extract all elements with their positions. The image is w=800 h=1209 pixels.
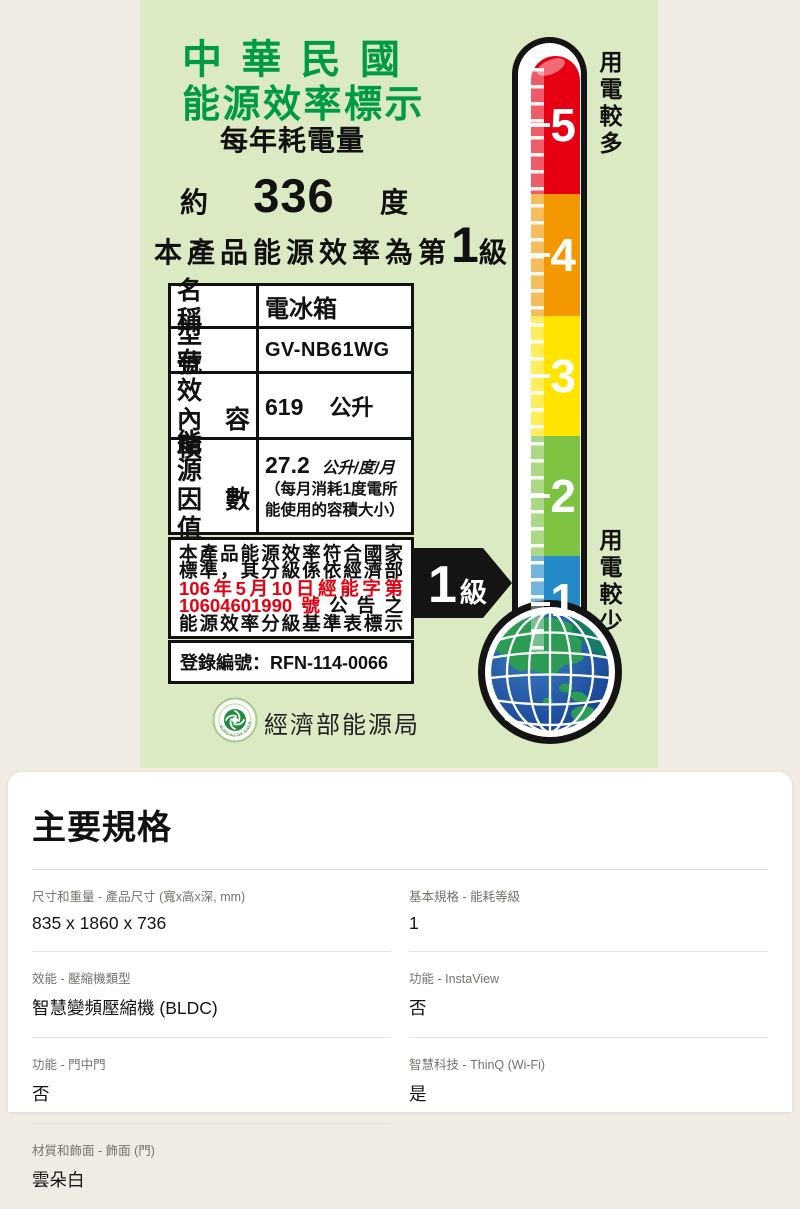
- spec-value: 否: [409, 995, 768, 1020]
- badge-grade-number: 1: [428, 554, 457, 616]
- statement-line-mixed: 10604601990號公告之: [179, 597, 403, 614]
- specs-left-column: 尺寸和重量 - 產品尺寸 (寬x高x深, mm) 835 x 1860 x 73…: [32, 870, 391, 1209]
- energy-label-area: 中 華 民 國 能源效率標示 每年耗電量 約 336 度 本產品能源效率為第 1…: [0, 0, 800, 768]
- segment-number: 4: [550, 232, 576, 278]
- thermometer-inner: 5 4 3 2 1: [518, 43, 581, 645]
- specs-title: 主要規格: [32, 800, 768, 849]
- energy-factor-unit: 公升/度/月: [322, 454, 395, 478]
- spec-label: 功能 - InstaView: [409, 968, 768, 987]
- standard-statement-box: 本產品能源效率符合國家 標準，其分級係依經濟部 106年5月10日經能字第 10…: [168, 537, 414, 639]
- spec-value: 智慧變頻壓縮機 (BLDC): [32, 995, 391, 1020]
- spec-value: 雲朵白: [32, 1167, 391, 1192]
- spec-row: 功能 - 門中門 否: [32, 1038, 391, 1124]
- spec-row: 功能 - InstaView 否: [409, 952, 768, 1038]
- agency-name: 經濟部能源局: [264, 705, 420, 740]
- spec-value: 是: [409, 1081, 768, 1106]
- row-label-text: 有 效: [177, 348, 250, 406]
- energy-factor-note: （每月消耗1度電所: [265, 481, 405, 500]
- capacity-unit: 公升: [329, 390, 373, 422]
- row-label: 能 源 因數值: [171, 440, 259, 532]
- specs-section: 主要規格 尺寸和重量 - 產品尺寸 (寬x高x深, mm) 835 x 1860…: [0, 768, 800, 1112]
- label-subtitle: 每年耗電量: [220, 119, 365, 159]
- spec-row: 基本規格 - 能耗等級 1: [409, 870, 768, 952]
- bureau-of-energy-seal-icon: BUREAU OF ENERGY: [212, 697, 258, 743]
- segment-number: 1: [550, 577, 576, 623]
- segment-number: 2: [550, 473, 576, 519]
- spec-label: 效能 - 壓縮機類型: [32, 968, 391, 987]
- product-name: 電冰箱: [265, 289, 405, 324]
- spec-row: 尺寸和重量 - 產品尺寸 (寬x高x深, mm) 835 x 1860 x 73…: [32, 870, 391, 952]
- registration-box: 登錄編號：RFN-114-0066: [168, 640, 414, 684]
- spec-label: 智慧科技 - ThinQ (Wi-Fi): [409, 1054, 768, 1073]
- product-info-table: 名 稱 電冰箱 型 號 GV-NB61WG 有 效 內容積: [168, 283, 414, 535]
- specs-card: 主要規格 尺寸和重量 - 產品尺寸 (寬x高x深, mm) 835 x 1860…: [8, 772, 792, 1112]
- row-label: 名 稱: [171, 286, 259, 326]
- spec-value: 1: [409, 913, 768, 934]
- thermometer-tube: 5 4 3 2 1: [512, 37, 587, 645]
- statement-line: 能源效率分級基準表標示: [179, 615, 403, 632]
- model-number: GV-NB61WG: [265, 339, 405, 362]
- segment-number: 3: [550, 353, 576, 399]
- spec-label: 功能 - 門中門: [32, 1054, 391, 1073]
- grade-sentence-suffix: 級: [479, 231, 507, 271]
- spec-value: 否: [32, 1081, 391, 1106]
- row-value: 電冰箱: [259, 286, 411, 326]
- grade-sentence: 本產品能源效率為第 1 級: [154, 216, 507, 274]
- spec-label: 基本規格 - 能耗等級: [409, 886, 768, 905]
- consumption-prefix: 約: [180, 181, 208, 221]
- consumption-unit: 度: [380, 181, 408, 221]
- consumption-value: 336: [253, 168, 334, 223]
- spec-label: 材質和飾面 - 飾面 (門): [32, 1140, 391, 1159]
- specs-grid: 尺寸和重量 - 產品尺寸 (寬x高x深, mm) 835 x 1860 x 73…: [30, 870, 770, 1209]
- registration-number: 登錄編號：RFN-114-0066: [180, 649, 388, 675]
- segment-number: 5: [550, 102, 576, 148]
- scale-ticks: [531, 68, 544, 651]
- table-row: 能 源 因數值 27.2 公升/度/月 （每月消耗1度電所 能使用的容積大小）: [171, 440, 411, 532]
- annual-consumption: 約 336 度: [180, 168, 408, 223]
- row-label-text: 因數值: [177, 486, 250, 544]
- energy-label-panel: 中 華 民 國 能源效率標示 每年耗電量 約 336 度 本產品能源效率為第 1…: [140, 0, 658, 768]
- row-value: 27.2 公升/度/月 （每月消耗1度電所 能使用的容積大小）: [259, 440, 411, 532]
- capacity-value: 619: [265, 394, 303, 421]
- grade-sentence-number: 1: [451, 216, 479, 274]
- spec-label: 尺寸和重量 - 產品尺寸 (寬x高x深, mm): [32, 886, 391, 905]
- row-label-text: 能 源: [177, 429, 250, 487]
- row-value: 619 公升: [259, 374, 411, 437]
- spec-row: 材質和飾面 - 飾面 (門) 雲朵白: [32, 1124, 391, 1209]
- less-power-label: 用電較少: [592, 528, 626, 636]
- spec-row: 效能 - 壓縮機類型 智慧變頻壓縮機 (BLDC): [32, 952, 391, 1038]
- spec-value: 835 x 1860 x 736: [32, 913, 391, 934]
- grade-sentence-prefix: 本產品能源效率為第: [154, 231, 451, 271]
- spec-row: 智慧科技 - ThinQ (Wi-Fi) 是: [409, 1038, 768, 1123]
- more-power-label: 用電較多: [592, 50, 626, 158]
- energy-factor-value: 27.2: [265, 452, 310, 479]
- thermometer-scale: 5 4 3 2 1: [531, 56, 580, 651]
- specs-right-column: 基本規格 - 能耗等級 1 功能 - InstaView 否 智慧科技 - Th…: [409, 870, 768, 1209]
- row-value: GV-NB61WG: [259, 329, 411, 371]
- energy-factor-note: 能使用的容積大小）: [265, 502, 405, 521]
